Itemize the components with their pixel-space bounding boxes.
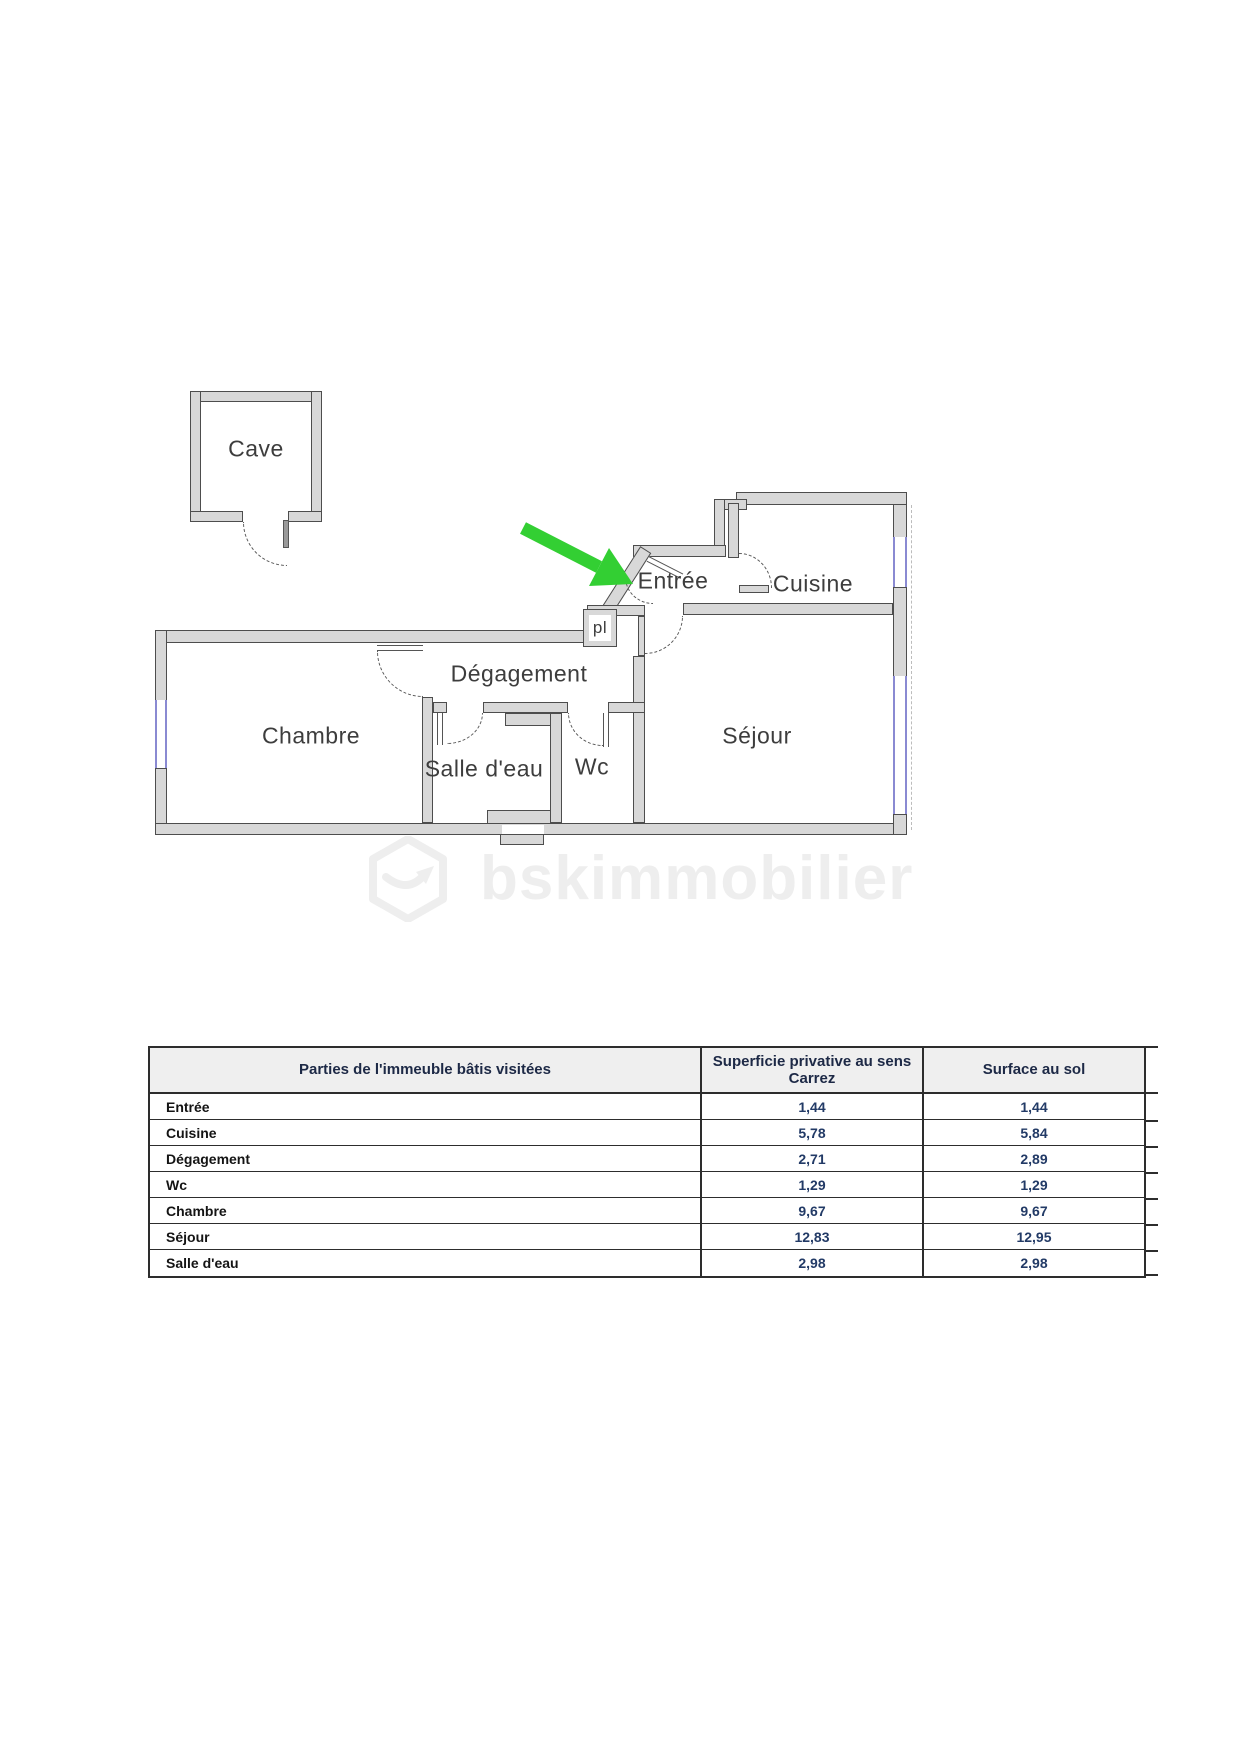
row-label: Cuisine	[150, 1120, 702, 1145]
row-label: Dégagement	[150, 1146, 702, 1171]
wall	[608, 702, 645, 713]
table-border-stub	[1146, 1172, 1158, 1174]
table-row: Séjour 12,83 12,95	[150, 1224, 1144, 1250]
facade-dash-line	[911, 505, 912, 830]
room-label-chambre: Chambre	[262, 723, 360, 750]
door-swing-arc	[243, 522, 287, 566]
table-border-stub	[1146, 1250, 1158, 1252]
row-sol: 5,84	[924, 1120, 1144, 1145]
row-label: Salle d'eau	[150, 1250, 702, 1276]
row-sol: 2,89	[924, 1146, 1144, 1171]
table-row: Wc 1,29 1,29	[150, 1172, 1144, 1198]
table-header-parties: Parties de l'immeuble bâtis visitées	[150, 1048, 702, 1092]
window	[893, 537, 907, 589]
salle-deau-door-leaf	[437, 713, 443, 745]
wall	[683, 603, 893, 615]
row-carrez: 2,98	[702, 1250, 924, 1276]
table-border-stub	[1146, 1120, 1158, 1122]
table-header-row: Parties de l'immeuble bâtis visitées Sup…	[150, 1048, 1144, 1094]
room-label-cuisine: Cuisine	[773, 571, 853, 598]
door-swing-arc	[377, 651, 423, 697]
surface-table: Parties de l'immeuble bâtis visitées Sup…	[148, 1046, 1146, 1278]
table-border-stub	[1146, 1274, 1158, 1276]
table-border-stub	[1146, 1146, 1158, 1148]
watermark-logo-icon	[356, 836, 460, 922]
wall	[288, 511, 322, 522]
room-label-wc: Wc	[575, 754, 609, 781]
wall	[155, 630, 587, 643]
window	[155, 700, 167, 770]
row-carrez: 2,71	[702, 1146, 924, 1171]
window	[893, 676, 907, 816]
wall	[893, 587, 907, 678]
table-border-stub	[1146, 1224, 1158, 1226]
room-label-cave: Cave	[228, 436, 284, 463]
room-label-degagement: Dégagement	[451, 661, 588, 688]
table-row: Dégagement 2,71 2,89	[150, 1146, 1144, 1172]
door-swing-arc	[645, 616, 683, 654]
wall	[433, 702, 447, 713]
table-row: Chambre 9,67 9,67	[150, 1198, 1144, 1224]
wc-door-leaf	[603, 713, 609, 747]
wall-notch	[502, 825, 544, 834]
wall	[893, 814, 907, 835]
wall	[633, 656, 645, 823]
table-border-stub	[1146, 1198, 1158, 1200]
row-sol: 2,98	[924, 1250, 1144, 1276]
row-sol: 1,29	[924, 1172, 1144, 1197]
wall	[311, 391, 322, 522]
entry-arrow-icon	[515, 518, 655, 608]
wall	[190, 391, 322, 402]
table-row: Cuisine 5,78 5,84	[150, 1120, 1144, 1146]
floorplan-document-page: Cave pl	[0, 0, 1240, 1755]
row-label: Chambre	[150, 1198, 702, 1223]
wall	[505, 713, 553, 726]
table-border-stub	[1146, 1046, 1158, 1048]
table-header-sol: Surface au sol	[924, 1048, 1144, 1092]
row-carrez: 5,78	[702, 1120, 924, 1145]
room-label-salle-deau: Salle d'eau	[425, 756, 544, 783]
row-sol: 12,95	[924, 1224, 1144, 1249]
table-header-carrez: Superficie privative au sens Carrez	[702, 1048, 924, 1092]
table-border-stub	[1146, 1092, 1158, 1094]
wall	[155, 630, 167, 702]
wall	[728, 503, 739, 558]
row-sol: 1,44	[924, 1094, 1144, 1119]
wall	[483, 702, 568, 713]
wall	[190, 511, 243, 522]
row-carrez: 12,83	[702, 1224, 924, 1249]
row-label: Séjour	[150, 1224, 702, 1249]
row-carrez: 1,44	[702, 1094, 924, 1119]
row-label: Wc	[150, 1172, 702, 1197]
table-row: Salle d'eau 2,98 2,98	[150, 1250, 1144, 1276]
room-label-placard: pl	[593, 618, 607, 638]
watermark-text: bskimmobilier	[480, 843, 913, 914]
row-label: Entrée	[150, 1094, 702, 1119]
door-swing-arc	[447, 713, 483, 744]
wall	[190, 391, 201, 522]
wall	[487, 810, 553, 824]
room-label-sejour: Séjour	[722, 723, 791, 750]
row-sol: 9,67	[924, 1198, 1144, 1223]
door-swing-arc	[568, 713, 603, 746]
row-carrez: 9,67	[702, 1198, 924, 1223]
door-swing-arc	[739, 553, 772, 588]
wall	[550, 713, 562, 823]
row-carrez: 1,29	[702, 1172, 924, 1197]
table-row: Entrée 1,44 1,44	[150, 1094, 1144, 1120]
wall	[638, 616, 645, 656]
wall	[736, 492, 907, 505]
